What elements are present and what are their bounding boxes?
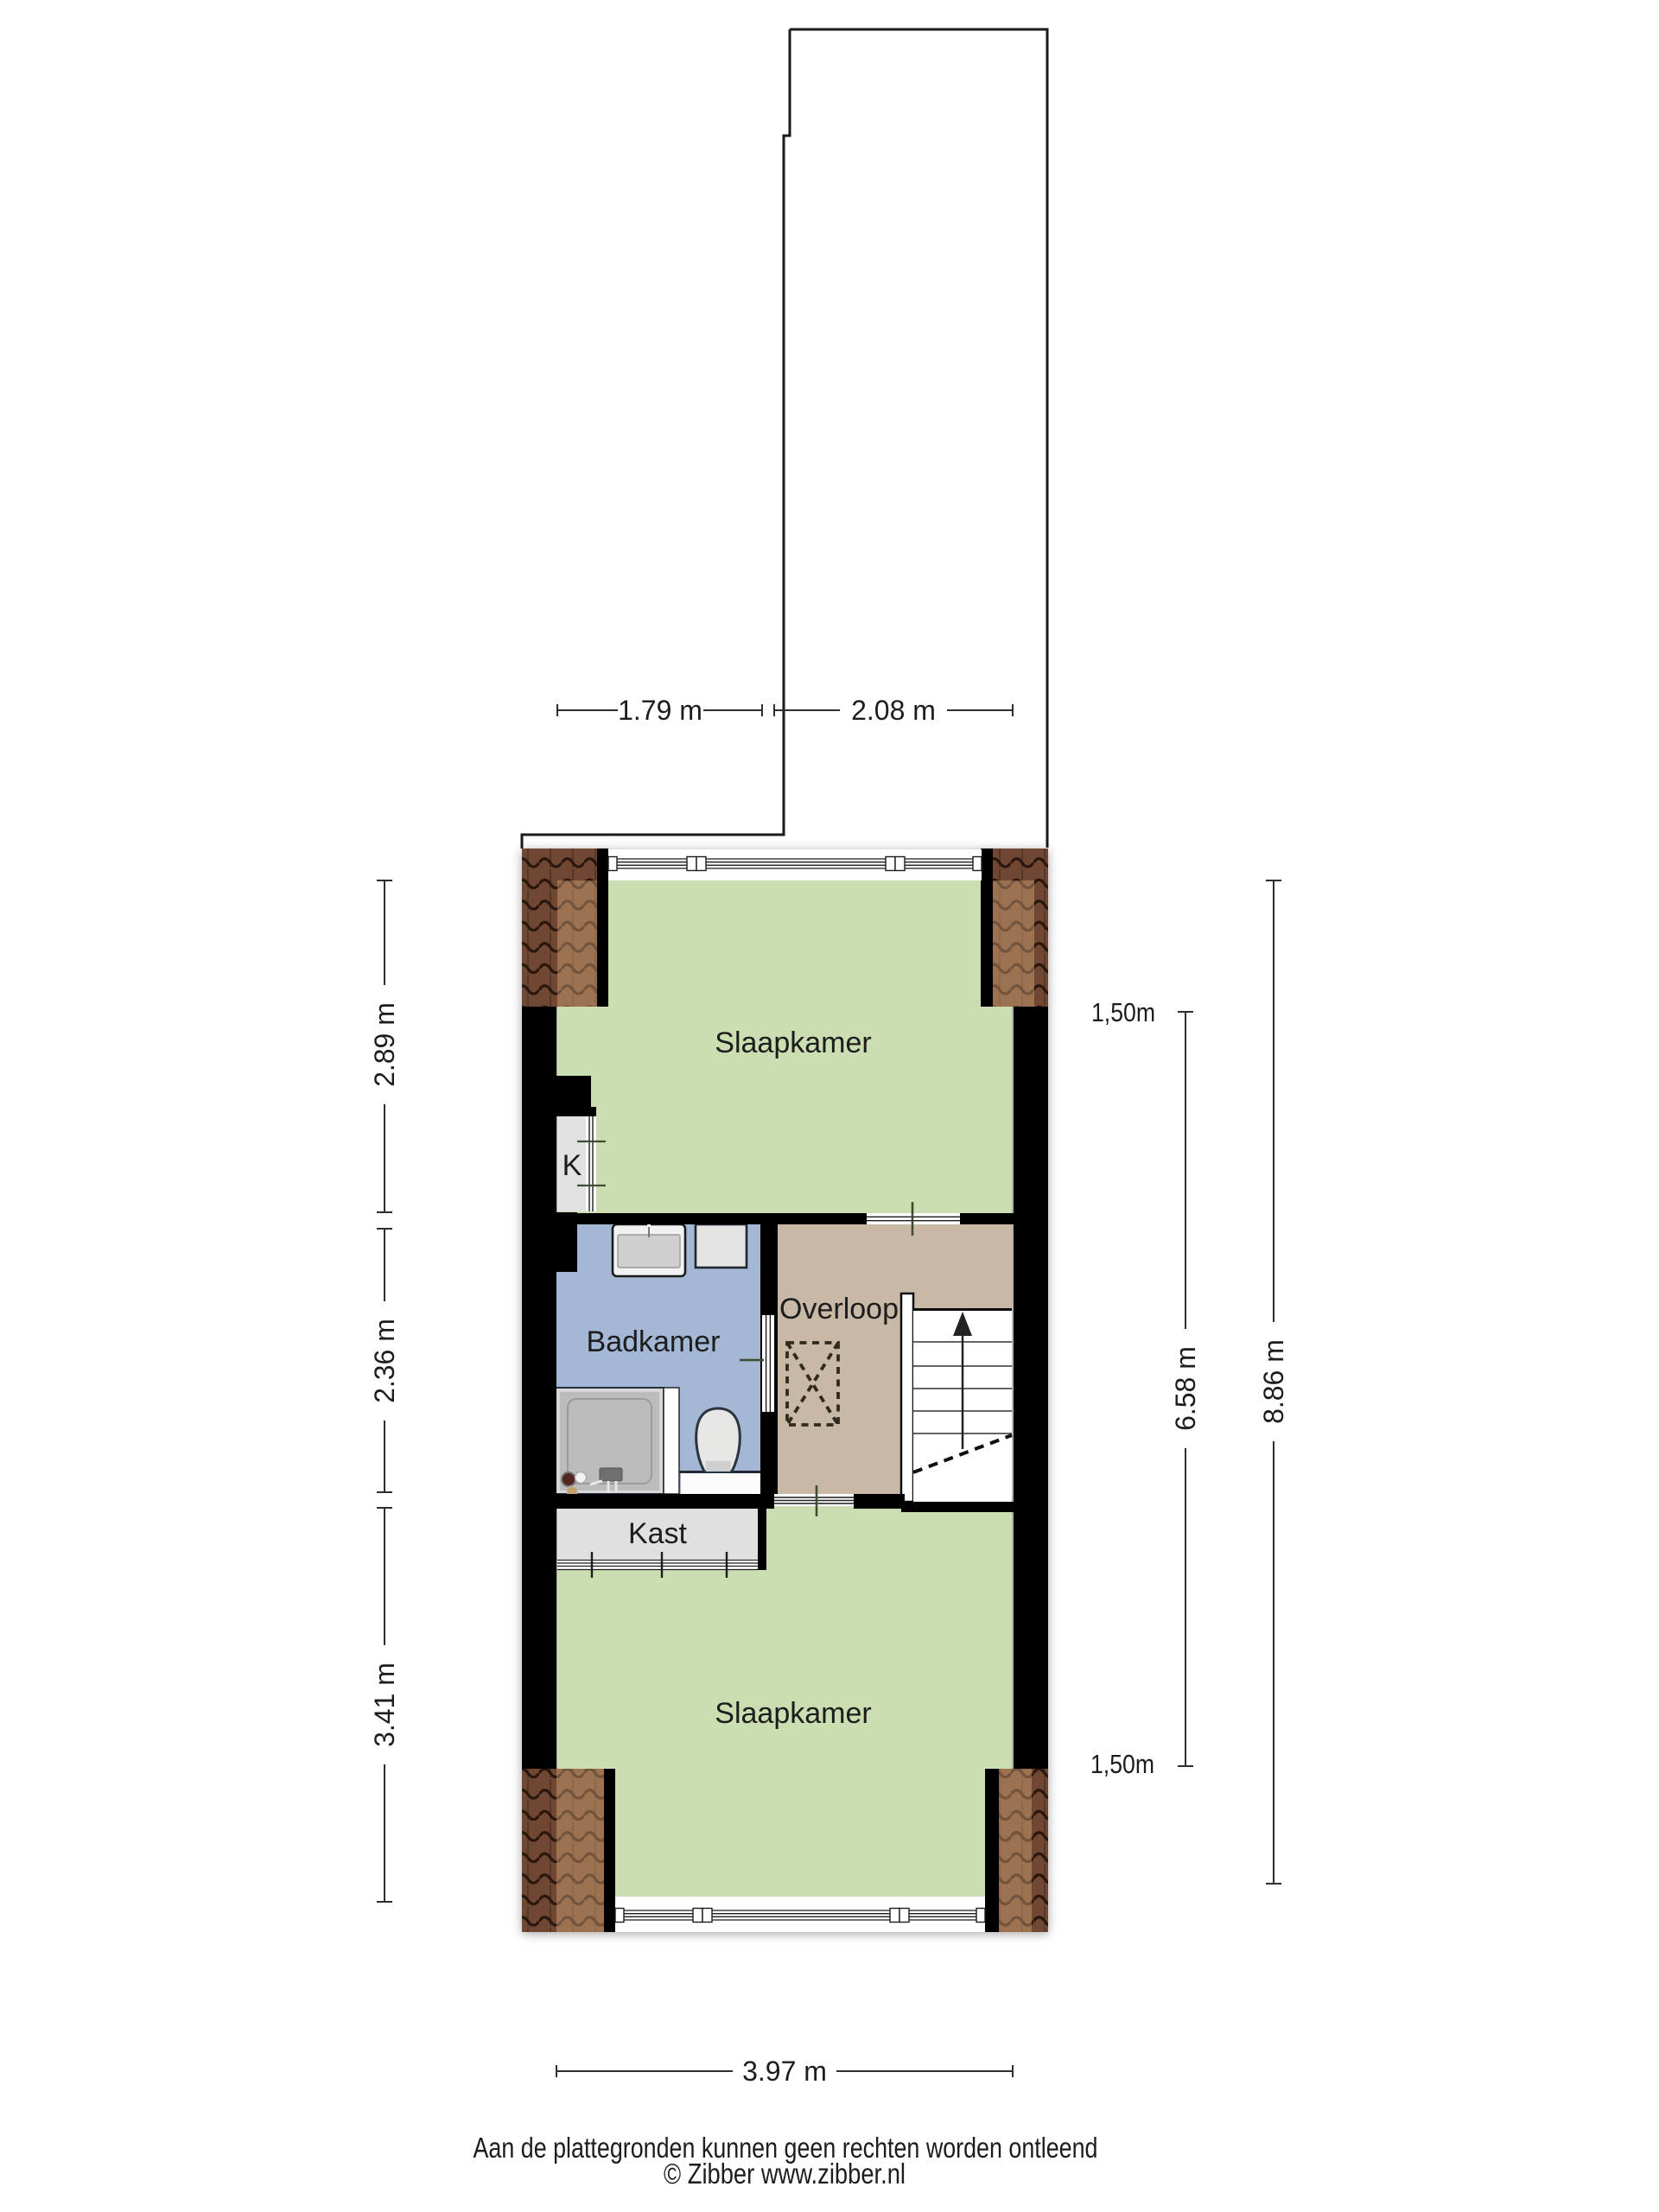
svg-text:Kast: Kast [628, 1517, 688, 1550]
svg-text:6.58 m: 6.58 m [1170, 1346, 1201, 1431]
svg-text:2.08 m: 2.08 m [851, 695, 936, 726]
svg-text:1,50m: 1,50m [1090, 1749, 1154, 1779]
svg-text:2.36 m: 2.36 m [369, 1319, 400, 1403]
svg-text:8.86 m: 8.86 m [1258, 1339, 1289, 1424]
svg-text:1,50m: 1,50m [1091, 997, 1155, 1027]
svg-text:Slaapkamer: Slaapkamer [715, 1027, 871, 1059]
svg-text:K: K [563, 1149, 582, 1182]
svg-text:1.79 m: 1.79 m [618, 695, 702, 726]
svg-text:Slaapkamer: Slaapkamer [715, 1697, 871, 1730]
svg-text:Badkamer: Badkamer [587, 1325, 721, 1358]
svg-text:3.97 m: 3.97 m [742, 2056, 827, 2087]
svg-text:3.41 m: 3.41 m [369, 1662, 400, 1747]
svg-text:Overloop: Overloop [779, 1293, 899, 1325]
svg-text:© Zibber www.zibber.nl: © Zibber www.zibber.nl [664, 2158, 906, 2190]
svg-text:2.89 m: 2.89 m [369, 1002, 400, 1087]
